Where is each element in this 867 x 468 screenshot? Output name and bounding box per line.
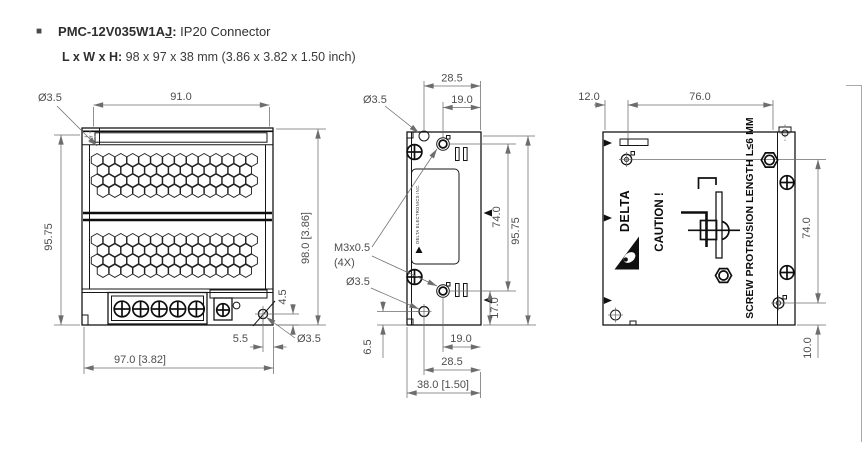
side-thread-spec-label: M3x0.5 xyxy=(334,242,370,254)
side-depth-top-dim: 28.5 xyxy=(441,73,462,85)
side-depth-bottom-dim: 38.0 [1.50] xyxy=(417,379,469,391)
side-hole-offset-bottom-dim: 19.0 xyxy=(450,333,471,345)
side-hole-offset-left-dim: 6.5 xyxy=(362,339,374,354)
terminal-screw xyxy=(114,301,130,317)
side-bottom-flange-hole xyxy=(417,304,432,319)
protrusion-note-label: SCREW PROTRUSION LENGTH L≤6 MM xyxy=(745,117,756,319)
honeycomb-vent-pattern xyxy=(91,154,257,278)
back-hole-bottom-left xyxy=(608,308,636,326)
front-width-bottom-dim: 97.0 [3.82] xyxy=(114,354,166,366)
terminal-screw xyxy=(189,301,205,317)
side-hole-offset-bottom2-dim: 28.5 xyxy=(441,356,462,368)
back-mount-hole-bottom-right xyxy=(771,296,787,311)
front-view: 91.0 Ø3.5 95.75 98.0 [3.86] 4.5 xyxy=(38,91,326,374)
front-hole-dia-top-label: Ø3.5 xyxy=(38,92,62,104)
mechanical-drawing: 91.0 Ø3.5 95.75 98.0 [3.86] 4.5 xyxy=(0,0,867,468)
side-product-label: DELTA ELECTRONICS INC. xyxy=(412,169,460,264)
screw-protrusion-illustration xyxy=(681,178,740,258)
side-dimensions: 28.5 19.0 Ø3.5 M3x0.5 (4X) Ø3.5 6.5 xyxy=(334,73,536,399)
terminal-screws xyxy=(114,301,204,317)
back-offset-bottom-dim: 10.0 xyxy=(802,337,814,358)
side-hole-dia-top-label: Ø3.5 xyxy=(363,94,387,106)
terminal-screw xyxy=(170,301,186,317)
side-hole-dia-bottom-label: Ø3.5 xyxy=(346,276,370,288)
side-screw-bottom xyxy=(407,270,422,285)
side-m3-hole-bottom xyxy=(437,283,450,298)
terminal-screw xyxy=(133,301,149,317)
caution-label: CAUTION ! xyxy=(654,192,666,251)
front-corner-gusset xyxy=(253,301,275,326)
back-mount-hole-top-left xyxy=(619,152,635,168)
back-top-right-hole xyxy=(779,125,791,142)
side-screw-top xyxy=(407,145,422,160)
side-height-right-dim: 95.75 xyxy=(510,217,522,245)
front-height-right-dim: 98.0 [3.86] xyxy=(300,212,312,264)
back-edge-wedge xyxy=(604,297,612,304)
back-edge-wedge xyxy=(604,140,612,147)
page-border xyxy=(846,85,862,442)
side-hole-spacing-dim: 74.0 xyxy=(491,206,503,227)
delta-logo: DELTA xyxy=(615,190,640,270)
back-screw-top xyxy=(780,176,794,190)
side-label-text: DELTA ELECTRONICS INC. xyxy=(415,184,420,244)
side-hole-offset-right-dim: 17.0 xyxy=(489,297,501,318)
hex-nut-middle xyxy=(716,269,732,283)
front-hole-offset-h-dim: 5.5 xyxy=(233,333,248,345)
back-screw-bottom xyxy=(780,266,794,280)
side-view: DELTA ELECTRONICS INC. 28.5 19.0 xyxy=(334,73,536,399)
delta-logo-text: DELTA xyxy=(618,190,632,232)
front-hole-dia-bottom-label: Ø3.5 xyxy=(297,333,321,345)
side-thread-qty-label: (4X) xyxy=(334,257,355,269)
terminal-screw xyxy=(151,301,167,317)
side-hole-offset-top-dim: 19.0 xyxy=(451,94,472,106)
front-dimensions: 91.0 Ø3.5 95.75 98.0 [3.86] 4.5 xyxy=(38,91,326,374)
terminal-block xyxy=(108,293,207,325)
front-divider-bar xyxy=(83,213,272,220)
front-width-top-dim: 91.0 xyxy=(170,91,191,103)
back-offset-top-dim: 12.0 xyxy=(578,91,599,103)
hex-nut-top xyxy=(761,153,777,167)
front-height-left-dim: 95.75 xyxy=(43,223,55,251)
side-m3-hole-top xyxy=(437,136,450,151)
back-hole-spacing-dim: 74.0 xyxy=(801,217,813,238)
back-view: DELTA CAUTION ! xyxy=(578,91,826,359)
front-bottom-tab xyxy=(82,315,88,325)
back-width-top-dim: 76.0 xyxy=(689,91,710,103)
datasheet-drawing-page: ■PMC-12V035W1AJ: IP20 Connector L x W x … xyxy=(0,0,867,468)
indicator-led xyxy=(233,302,240,309)
back-edge-wedge xyxy=(604,215,612,222)
back-top-slot xyxy=(620,139,648,146)
front-hole-offset-v-dim: 4.5 xyxy=(277,289,289,304)
